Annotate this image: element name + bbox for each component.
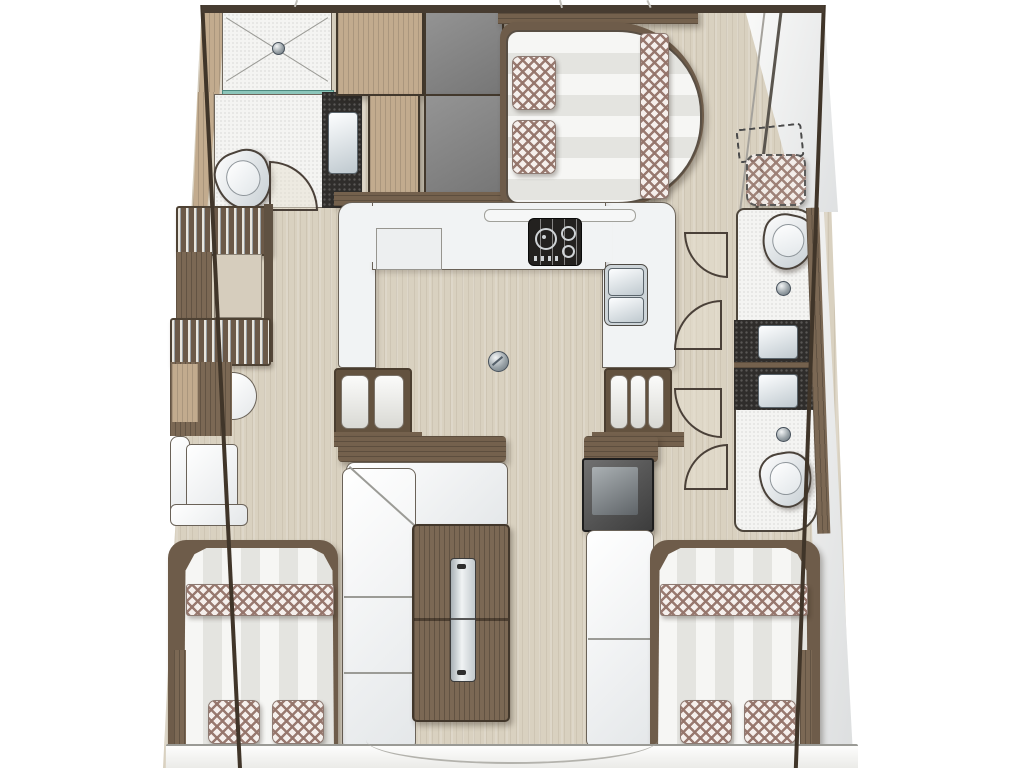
- pillow-icon: [272, 700, 324, 744]
- pillow-icon: [744, 700, 796, 744]
- vanity-starboard-aft: [734, 368, 816, 410]
- port-bench-lip: [170, 504, 248, 526]
- table-hinge-strip: [450, 558, 476, 682]
- sink-bowl: [608, 297, 644, 323]
- louvered-locker-a: [176, 206, 272, 256]
- washbasin-forward: [328, 112, 358, 174]
- washbasin: [758, 374, 798, 408]
- salon-table: [412, 524, 510, 722]
- blanket-runner: [186, 584, 334, 616]
- sofa-backrest: [338, 436, 506, 462]
- pillow-icon: [512, 120, 556, 174]
- sink-bowl: [608, 268, 644, 296]
- washbasin: [758, 325, 798, 359]
- burner-icon: [535, 228, 557, 250]
- burner-icon: [561, 226, 576, 241]
- sofa-cushion-seam: [344, 672, 412, 674]
- bow-cut-mask: [0, 0, 1024, 5]
- pillow-icon: [680, 700, 732, 744]
- blanket-runner-forward: [640, 33, 669, 199]
- galley-worktop: [376, 228, 442, 270]
- floor-fitting-icon: [488, 351, 509, 372]
- port-cabinet-panel: [214, 254, 262, 318]
- wardrobe-wood-a: [336, 8, 424, 96]
- pillow-icon: [512, 56, 556, 110]
- sofa-cushion-left: [342, 468, 416, 750]
- sofa-cushion-seam: [344, 596, 412, 598]
- floor-drain-icon: [776, 427, 791, 442]
- optional-berth-dashed: [746, 154, 806, 206]
- yacht-floor-plan: [0, 0, 1024, 768]
- locker-gray-b: [424, 94, 504, 196]
- floor-drain-icon: [776, 281, 791, 296]
- stove-knobs: [534, 256, 561, 261]
- vanity-forward: [322, 92, 362, 208]
- aft-starboard-berth-side-board: [800, 650, 812, 750]
- locker-gray-a: [424, 8, 504, 96]
- wardrobe-wood-b: [368, 94, 420, 196]
- cooler-box: [582, 458, 654, 532]
- vanity-starboard-forward: [734, 320, 816, 362]
- burner-icon: [562, 245, 575, 258]
- shower-tray: [222, 8, 332, 94]
- stove-icon: [528, 218, 582, 266]
- companionway-steps-starboard: [604, 368, 672, 436]
- port-cabinet-a: [176, 252, 212, 318]
- companionway-steps-port: [334, 368, 412, 436]
- blanket-runner: [660, 584, 808, 616]
- bench-cushion-seam: [588, 638, 650, 640]
- aft-port-berth-side-board: [174, 650, 186, 750]
- shower-drain-icon: [272, 42, 285, 55]
- galley-double-sink: [604, 264, 648, 326]
